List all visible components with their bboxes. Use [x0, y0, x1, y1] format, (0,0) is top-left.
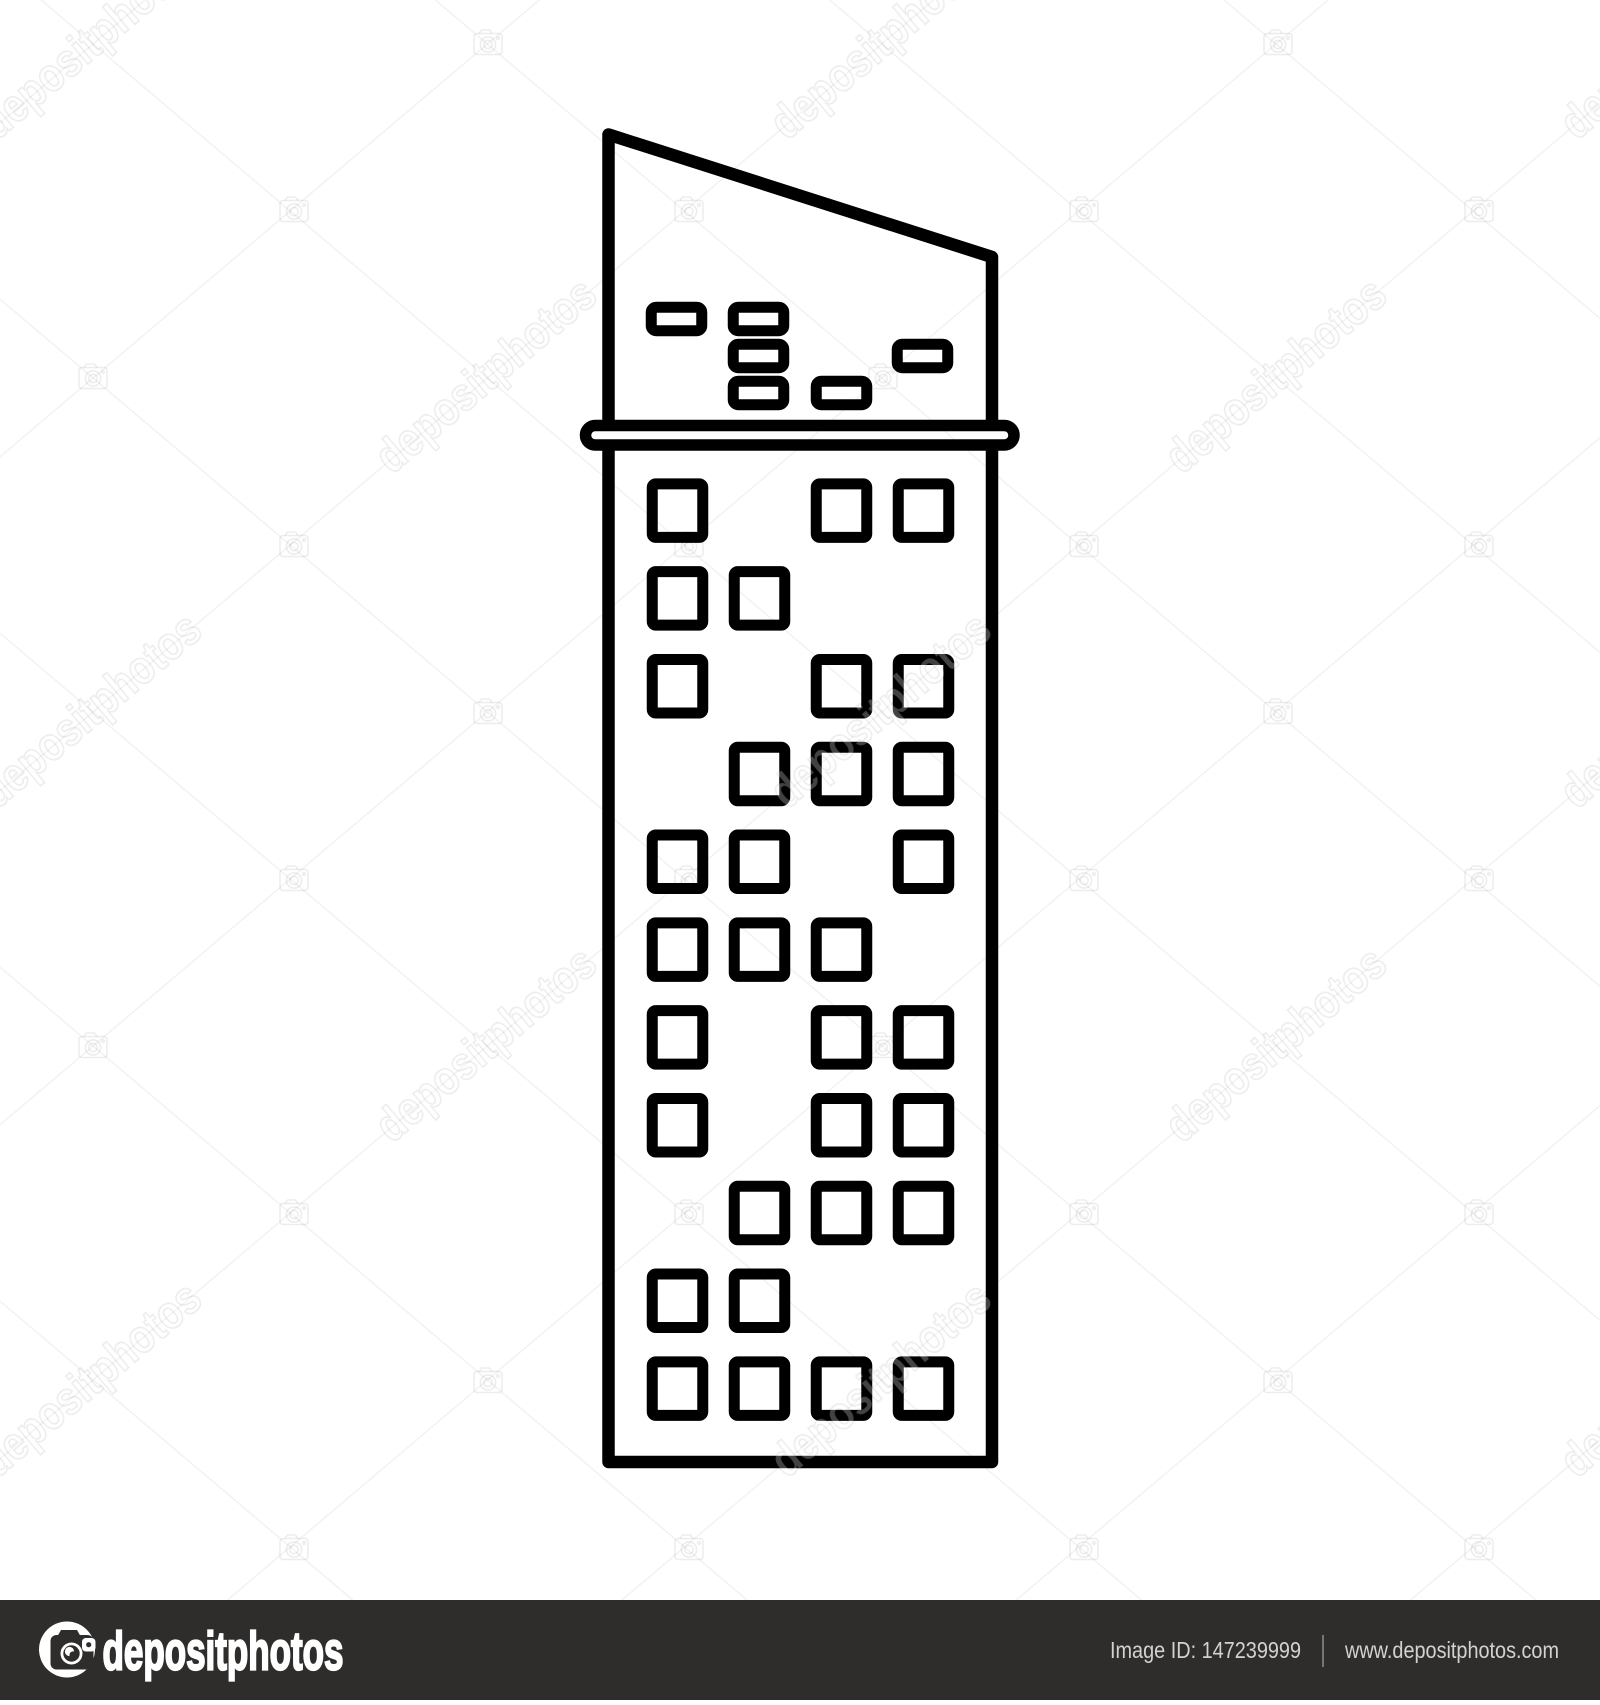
svg-text:www.depositphotos.com: www.depositphotos.com — [1344, 1637, 1559, 1663]
svg-text:depositphotos: depositphotos — [103, 1622, 344, 1682]
svg-text:Image ID: 147239999: Image ID: 147239999 — [1110, 1637, 1301, 1663]
